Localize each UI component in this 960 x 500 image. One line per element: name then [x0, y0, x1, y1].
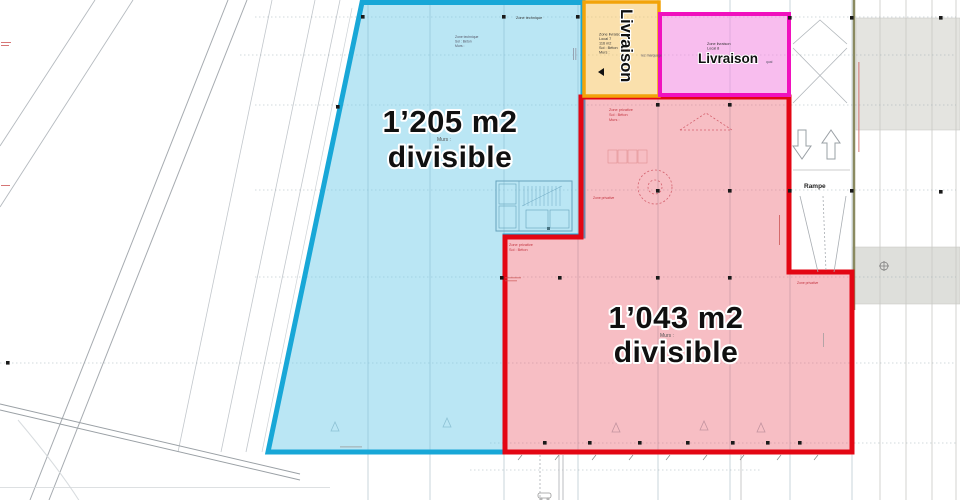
zones [268, 2, 852, 452]
magenta-delivery-title: Livraison [698, 51, 758, 66]
red-zone-note: Zone privative [509, 243, 533, 247]
red-zone-note: Zone privative [593, 196, 614, 200]
blue-zone-note: Sol : Béton [455, 40, 472, 44]
yellow-info-line: Murs : [599, 51, 610, 55]
blue-zone-note: Zone technique [455, 35, 478, 39]
blue-zone-area-label: 1’205 m2 [383, 104, 518, 139]
yellow-delivery-title: Livraison [617, 9, 635, 82]
floor-plan-image: Rampe Zone livraison Local 7 116 m2 Sol … [0, 0, 960, 500]
magenta-info-line: Zone livraison [707, 42, 731, 46]
lower-site-lines [540, 455, 741, 500]
ramp-label: Rampe [804, 183, 826, 190]
floor-plan-screenshot: Rampe Zone livraison Local 7 116 m2 Sol … [0, 0, 960, 500]
arrow-down-icon [793, 130, 811, 159]
ramp-edges [800, 196, 846, 272]
grey-mass-top-right [856, 18, 960, 130]
red-zone-area-label: 1’043 m2 [609, 300, 744, 335]
ramp-area: Rampe [793, 20, 850, 272]
grey-mass-mid-right [853, 247, 960, 304]
red-zone-note: Murs : [609, 118, 620, 122]
magenta-info-line: Local 8 [707, 47, 719, 51]
yellow-info-line: Local 7 [599, 37, 611, 41]
blue-zone-note: Murs : [455, 44, 464, 48]
ramp-arrows [793, 130, 840, 159]
yellow-info-line: Sol : Béton [599, 46, 618, 50]
magenta-side-note: quai [766, 60, 773, 64]
technical-note: Zone technique [516, 16, 542, 20]
yellow-info-line: 116 m2 [599, 42, 611, 46]
red-zone-note: Zone privative [797, 281, 818, 285]
red-zone-note: Zone privative [609, 108, 633, 112]
red-zone-note: Sol : Béton [609, 113, 628, 117]
arrow-up-icon [822, 130, 840, 159]
red-zone-divisible-label: divisible [614, 336, 739, 369]
blue-zone-divisible-label: divisible [388, 141, 513, 174]
red-zone-note: Sol : Béton [509, 248, 528, 252]
truss-lines [793, 20, 850, 170]
yellow-side-note: rez marquage [641, 54, 662, 58]
